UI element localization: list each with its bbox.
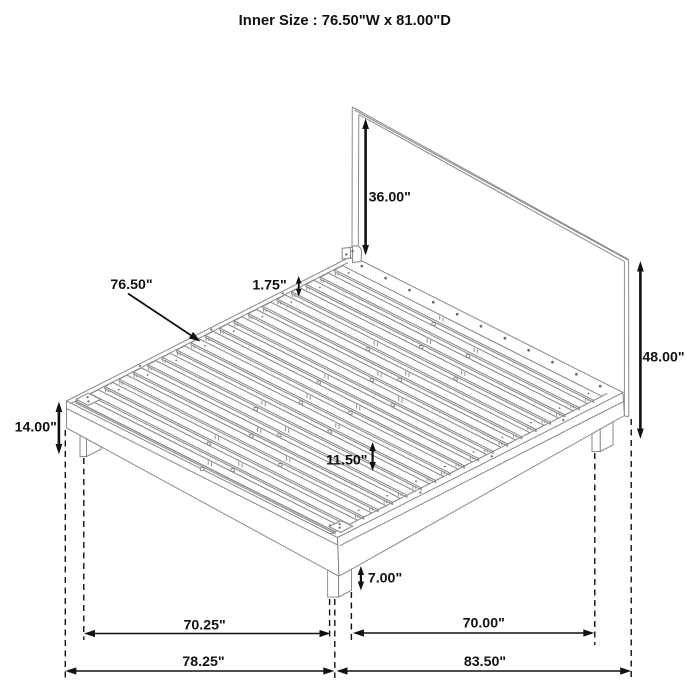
svg-text:11.50": 11.50" (326, 452, 367, 468)
svg-text:36.00": 36.00" (369, 189, 411, 205)
svg-text:76.50": 76.50" (110, 277, 152, 293)
svg-text:48.00": 48.00" (642, 349, 684, 365)
svg-text:70.00": 70.00" (463, 615, 505, 631)
svg-text:7.00": 7.00" (368, 571, 402, 587)
svg-text:70.25": 70.25" (183, 617, 225, 633)
svg-text:78.25": 78.25" (182, 654, 224, 670)
svg-text:1.75": 1.75" (252, 277, 286, 293)
svg-text:Inner Size : 76.50"W x 81.00"D: Inner Size : 76.50"W x 81.00"D (239, 13, 452, 29)
svg-text:83.50": 83.50" (464, 654, 506, 670)
svg-text:14.00": 14.00" (15, 420, 57, 436)
